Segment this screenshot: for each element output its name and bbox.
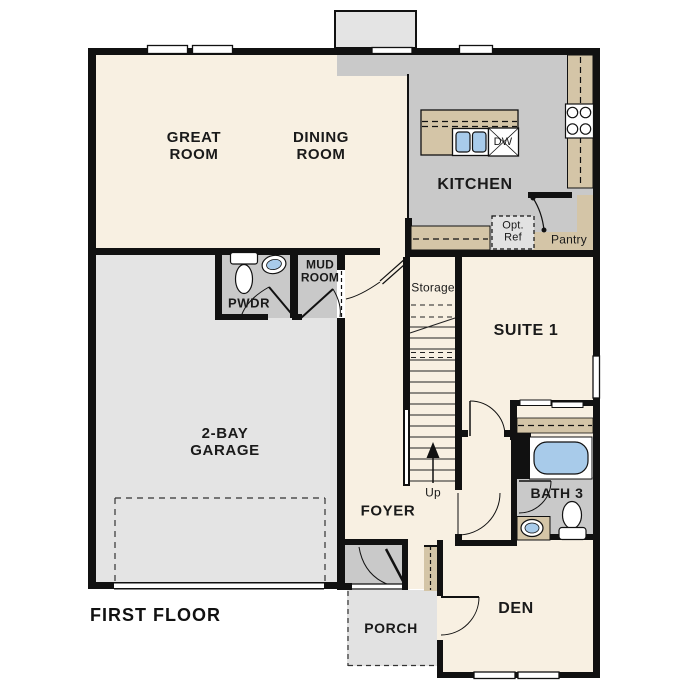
- bathtub-icon: [530, 437, 593, 479]
- kitchen-sink-icon: [453, 129, 489, 156]
- room-label-garage: 2-BAYGARAGE: [190, 426, 259, 460]
- plan-title: FIRST FLOOR: [90, 605, 221, 626]
- bath-toilet-icon: [559, 502, 586, 540]
- room-label-mud-room: MUDROOM: [301, 259, 339, 286]
- label-optional-refrigerator: Opt.Ref: [502, 220, 524, 245]
- room-label-pwdr: PWDR: [228, 297, 270, 312]
- room-label-den: DEN: [498, 600, 534, 618]
- pwdr-sink-icon: [260, 253, 287, 276]
- den-door: [441, 597, 479, 635]
- storage-door: [346, 258, 409, 299]
- garage-door: [114, 498, 325, 590]
- hall-door: [458, 493, 500, 535]
- stove-icon: [566, 104, 594, 138]
- floor-plan: GREATROOM DININGROOM KITCHEN Pantry Opt.…: [0, 0, 687, 687]
- label-storage: Storage: [411, 281, 454, 294]
- front-door-threshold: [352, 584, 402, 590]
- room-label-pantry: Pantry: [551, 233, 587, 246]
- room-label-kitchen: KITCHEN: [437, 176, 512, 194]
- fixtures-overlay: [0, 0, 687, 687]
- kitchen-counter-bottom: [411, 226, 490, 250]
- room-label-suite1: SUITE 1: [494, 322, 559, 340]
- suite-closet: [517, 400, 593, 433]
- room-label-bath3: BATH 3: [530, 486, 583, 502]
- suite1-door: [470, 401, 505, 436]
- room-label-porch: PORCH: [364, 621, 418, 637]
- room-label-great-room: GREATROOM: [167, 130, 221, 164]
- pwdr-toilet-icon: [231, 253, 258, 294]
- front-door: [359, 547, 404, 586]
- label-dishwasher: DW: [494, 136, 513, 148]
- bath-vanity-sink-icon: [517, 517, 550, 541]
- label-stairs-up: Up: [425, 486, 441, 499]
- room-label-dining-room: DININGROOM: [293, 130, 349, 164]
- room-label-foyer: FOYER: [361, 504, 416, 521]
- mud-room-door: [301, 289, 340, 318]
